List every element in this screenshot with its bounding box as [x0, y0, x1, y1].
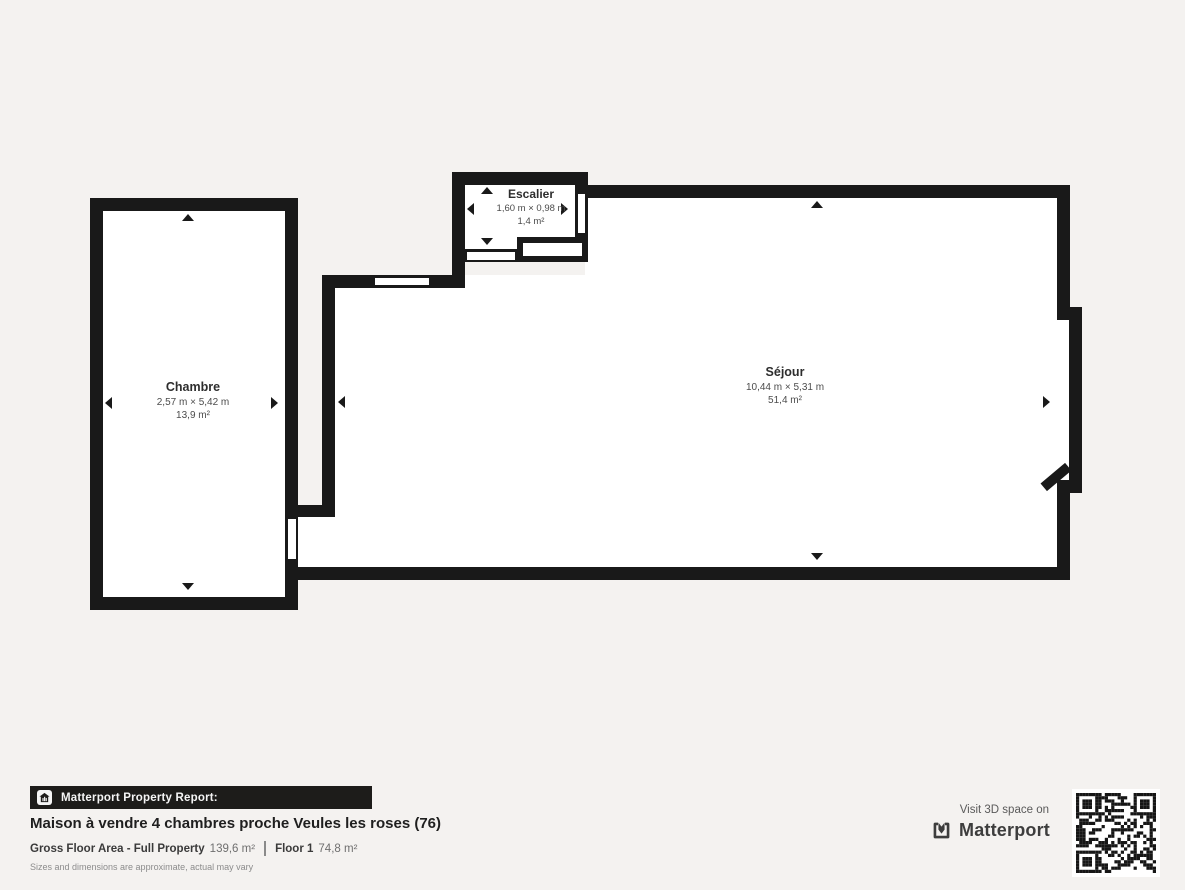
matterport-brand-text: Matterport [959, 820, 1050, 841]
disclaimer-text: Sizes and dimensions are approximate, ac… [30, 862, 253, 872]
room-label-escalier: Escalier 1,60 m × 0,98 m 1,4 m² [497, 187, 566, 227]
page-title: Maison à vendre 4 chambres proche Veules… [30, 815, 441, 832]
window [374, 277, 430, 286]
sejour-room-fill-right [585, 185, 1070, 580]
visit-3d-block: Visit 3D space on Matterport [845, 804, 1050, 841]
stats-divider [264, 841, 266, 856]
measure-arrow-down-icon [182, 583, 194, 590]
door-opening [467, 252, 515, 260]
wall-segment [285, 567, 1070, 580]
room-label-sejour: Séjour 10,44 m × 5,31 m 51,4 m² [746, 365, 824, 406]
measure-arrow-down-icon [481, 238, 493, 245]
measure-arrow-right-icon [1043, 396, 1050, 408]
room-label-chambre: Chambre 2,57 m × 5,42 m 13,9 m² [157, 380, 230, 421]
wall-segment [90, 198, 103, 610]
measure-arrow-right-icon [271, 397, 278, 409]
visit-3d-text: Visit 3D space on [960, 804, 1049, 816]
wall-segment [585, 185, 1070, 198]
matterport-logo: Matterport [931, 820, 1050, 841]
measure-arrow-up-icon [182, 214, 194, 221]
wall-segment [452, 172, 465, 288]
wall-segment [452, 172, 588, 185]
room-area: 13,9 m² [157, 410, 230, 421]
room-name: Escalier [497, 187, 566, 201]
door-opening [288, 519, 296, 559]
room-name: Chambre [157, 380, 230, 394]
stair-step-tread [523, 243, 582, 256]
gross-floor-area-value: 139,6 m² [210, 843, 255, 855]
room-area: 1,4 m² [497, 216, 566, 227]
wall-segment [90, 597, 298, 610]
wall-segment [90, 198, 298, 211]
room-dimensions: 2,57 m × 5,42 m [157, 397, 230, 408]
report-header-bar: Matterport Property Report: [30, 786, 372, 809]
property-report-icon [37, 790, 52, 805]
measure-arrow-left-icon [467, 203, 474, 215]
room-dimensions: 10,44 m × 5,31 m [746, 382, 824, 393]
measure-arrow-left-icon [338, 396, 345, 408]
sejour-room-fill-alcove [298, 517, 322, 567]
report-bar-label: Matterport Property Report: [61, 792, 218, 804]
floor-label: Floor 1 [275, 843, 313, 855]
gross-floor-area-label: Gross Floor Area - Full Property [30, 843, 205, 855]
wall-segment [1057, 480, 1070, 580]
area-stats: Gross Floor Area - Full Property 139,6 m… [30, 841, 357, 856]
room-name: Séjour [746, 365, 824, 379]
qr-code [1072, 789, 1160, 877]
wall-segment [1057, 185, 1070, 320]
room-area: 51,4 m² [746, 395, 824, 406]
measure-arrow-up-icon [481, 187, 493, 194]
wall-segment [322, 275, 335, 517]
measure-arrow-down-icon [811, 553, 823, 560]
wall-segment [1069, 307, 1082, 492]
measure-arrow-left-icon [105, 397, 112, 409]
floor-plan: Chambre 2,57 m × 5,42 m 13,9 m² Séjour 1… [0, 0, 1185, 770]
floor-value: 74,8 m² [318, 843, 357, 855]
room-dimensions: 1,60 m × 0,98 m [497, 203, 566, 214]
measure-arrow-up-icon [811, 201, 823, 208]
matterport-logo-icon [931, 820, 952, 841]
window [577, 193, 586, 234]
